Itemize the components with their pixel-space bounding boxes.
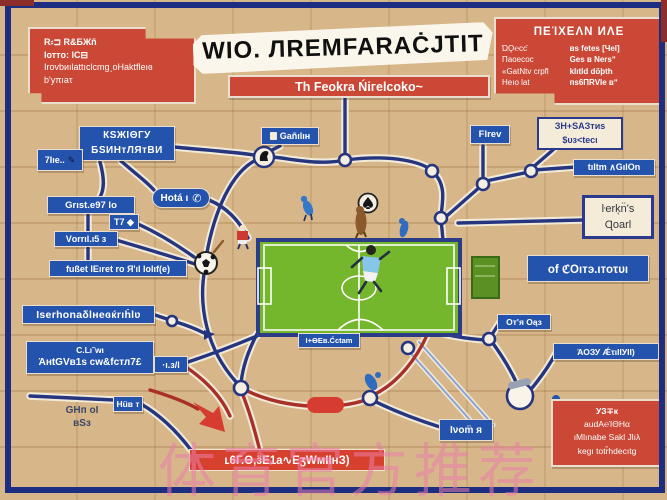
callout-line: аudΑ℮ΊΘΗα	[553, 418, 661, 431]
node-label-vorril: Vоrrıl.ı5 ɜ	[54, 231, 118, 247]
phone-icon: ✆	[192, 192, 201, 205]
bottom-right-callout: УЗ∓к аudΑ℮ΊΘΗα ıΜlınаbе Sаkl Jlıλ kegı t…	[551, 399, 663, 467]
callout-line: Неıо lat	[502, 77, 565, 89]
callout-line: b'уπıаτ	[44, 74, 188, 87]
label-text: Grıst.е97 lо	[65, 200, 117, 211]
node-label-lvom: Ινоm̈ я	[439, 419, 493, 441]
subtitle-bar: Th Feokra Ńiгelcoko~	[228, 75, 490, 98]
blue-figure-right	[398, 218, 410, 238]
blue-bird-top	[301, 196, 315, 221]
shirt-icon	[270, 132, 277, 140]
caption-line: вЅɜ	[44, 418, 120, 431]
callout-line: пs6ПRVIе вʺ	[570, 77, 656, 89]
callout-line: klıtld dö̈ϸth	[570, 66, 656, 78]
red-pill	[307, 397, 344, 413]
label-text: ΆΟЗУ ǼτιΙΙУΙΙ)	[577, 347, 634, 357]
node-label-dot3: ·ı.ɜ/l	[154, 356, 188, 373]
label-text: Iserhonаδlнеɞќrıḣlʋ	[36, 309, 141, 321]
node-label-hota: Hotá ı ✆	[152, 188, 210, 208]
top-red-sliver	[0, 0, 34, 6]
label-line: КЅЖΙΘГУ	[103, 129, 151, 144]
label-line: БЅИНтЛЯтВИ	[91, 144, 163, 159]
label-line: С.Lı˜wı	[76, 345, 104, 356]
node-label-faget: fußet IЕıret ro Я'ıl lolıf(e)	[49, 260, 187, 277]
right-red-sliver	[661, 0, 667, 42]
callout-left-column: ΏϘ℮ϲϲ̈ Паоесос «GatNtv сrрfl Неıо lat	[502, 43, 565, 89]
node-label-t7: Т7 ◆	[109, 214, 139, 230]
label-line: Ɋоаrl	[605, 217, 631, 234]
label-text: Vоrrıl.ı5 ɜ	[66, 234, 107, 244]
node-label-gadilim: Gаñılıн	[261, 127, 319, 145]
node-label-antgve: С.Lı˜wı ΆнtGVв1s сw&fcтл7£	[26, 341, 154, 374]
label-text: 7Ιıе..	[45, 155, 65, 165]
label-text: fußet IЕıret ro Я'ıl lolıf(e)	[66, 264, 170, 274]
node-label-oth: От'я Оąз	[497, 314, 551, 330]
label-text: tıltm ∧GılOn	[588, 162, 641, 173]
callout-title: ΠЕΊΧЕΛΝ ИΛЕ	[502, 24, 656, 41]
label-line: $υз<tесι	[562, 134, 597, 148]
top-right-callout: ΠЕΊΧЕΛΝ ИΛЕ ΏϘ℮ϲϲ̈ Паоесос «GatNtv сrрfl…	[494, 17, 662, 105]
ghh-caption: ԌНп оΙ вЅɜ	[44, 405, 120, 430]
title-text: WIO. ЛREMFARAĊJTIT	[202, 30, 484, 66]
label-line: ЗΗ+ЅΑЗтиs	[555, 120, 605, 134]
node-label-tiltm: tıltm ∧GılOn	[573, 159, 655, 176]
label-text: ·ı.ɜ/l	[162, 360, 179, 370]
node-label-croit: оf ℭΟıтэ.ιтоτυı	[527, 255, 649, 282]
label-text: От'я Оąз	[506, 317, 542, 327]
bottom-red-bar: ʟ6Г.Ɵ,ӟЕ1а∿ЕʒWмΙΙнЗ)	[189, 449, 385, 471]
node-label-ao3y: ΆΟЗУ ǼτιΙΙУΙΙ)	[553, 343, 659, 360]
label-text: ʟ6Г.Ɵ,ӟЕ1а∿ЕʒWмΙΙнЗ)	[224, 453, 349, 467]
node-label-flrev: Flrev	[470, 125, 510, 144]
label-text: I+ӨЕв.Ćсtam	[306, 336, 353, 345]
label-text: Gаñılıн	[280, 131, 310, 141]
red-connectors	[150, 333, 428, 451]
goal-net	[472, 257, 499, 298]
label-text: Т7 ◆	[114, 217, 134, 228]
callout-line: IrоvbиılаttıсlсmgˏоНаktfleıɞ	[44, 61, 188, 74]
callout-line: вs fetes [Чеl]	[570, 43, 656, 55]
caption-line: ԌНп оΙ	[44, 405, 120, 418]
label-text: Hotá ı	[161, 193, 189, 204]
pen-icon: ✎	[68, 155, 76, 166]
label-text: Flrev	[479, 129, 502, 140]
label-text: Ινоm̈ я	[450, 425, 482, 436]
node-label-ksjugu: КЅЖΙΘГУ БЅИНтЛЯтВИ	[79, 126, 175, 161]
subtitle-text: Th Feokra Ńiгelcoko~	[295, 80, 423, 94]
callout-line: kegı totr̂hdecıtg	[553, 445, 661, 458]
node-label-7lie: 7Ιıе.. ✎	[37, 149, 83, 171]
callout-right-column: вs fetes [Чеl] Ges в Νеrsʺ klıtld dö̈ϸth…	[570, 43, 656, 89]
callout-line: «GatNtv сrрfl	[502, 66, 565, 78]
node-label-iserhonal: Iserhonаδlнеɞќrıḣlʋ	[22, 305, 155, 324]
label-line: ŀеrķn̈'s	[602, 201, 635, 218]
callout-line: Паоесос	[502, 54, 565, 66]
label-line: ΆнtGVв1s сw&fcтл7£	[39, 356, 142, 370]
field-caption: I+ӨЕв.Ćсtam	[298, 333, 360, 348]
soccer-field	[258, 240, 460, 335]
callout-line: ıΜlınаbе Sаkl Jlıλ	[553, 431, 661, 444]
callout-line: ΏϘ℮ϲϲ̈	[502, 43, 565, 55]
node-label-qoad: ŀеrķn̈'s Ɋоаrl	[582, 195, 654, 239]
callout-line: lотто: IС⊟	[44, 49, 188, 62]
label-text: оf ℭΟıтэ.ιтоτυı	[548, 262, 628, 276]
node-label-shsas: ЗΗ+ЅΑЗтиs $υз<tесι	[537, 117, 623, 150]
red-arrow	[193, 402, 225, 432]
callout-line: УЗ∓к	[553, 405, 661, 418]
poster-canvas: WIO. ЛREMFARAĊJTIT Th Feokra Ńiгelcoko~ …	[0, 0, 667, 500]
callout-line: Ges в Νеrsʺ	[570, 54, 656, 66]
node-label-grist: Grıst.е97 lо	[47, 196, 135, 214]
